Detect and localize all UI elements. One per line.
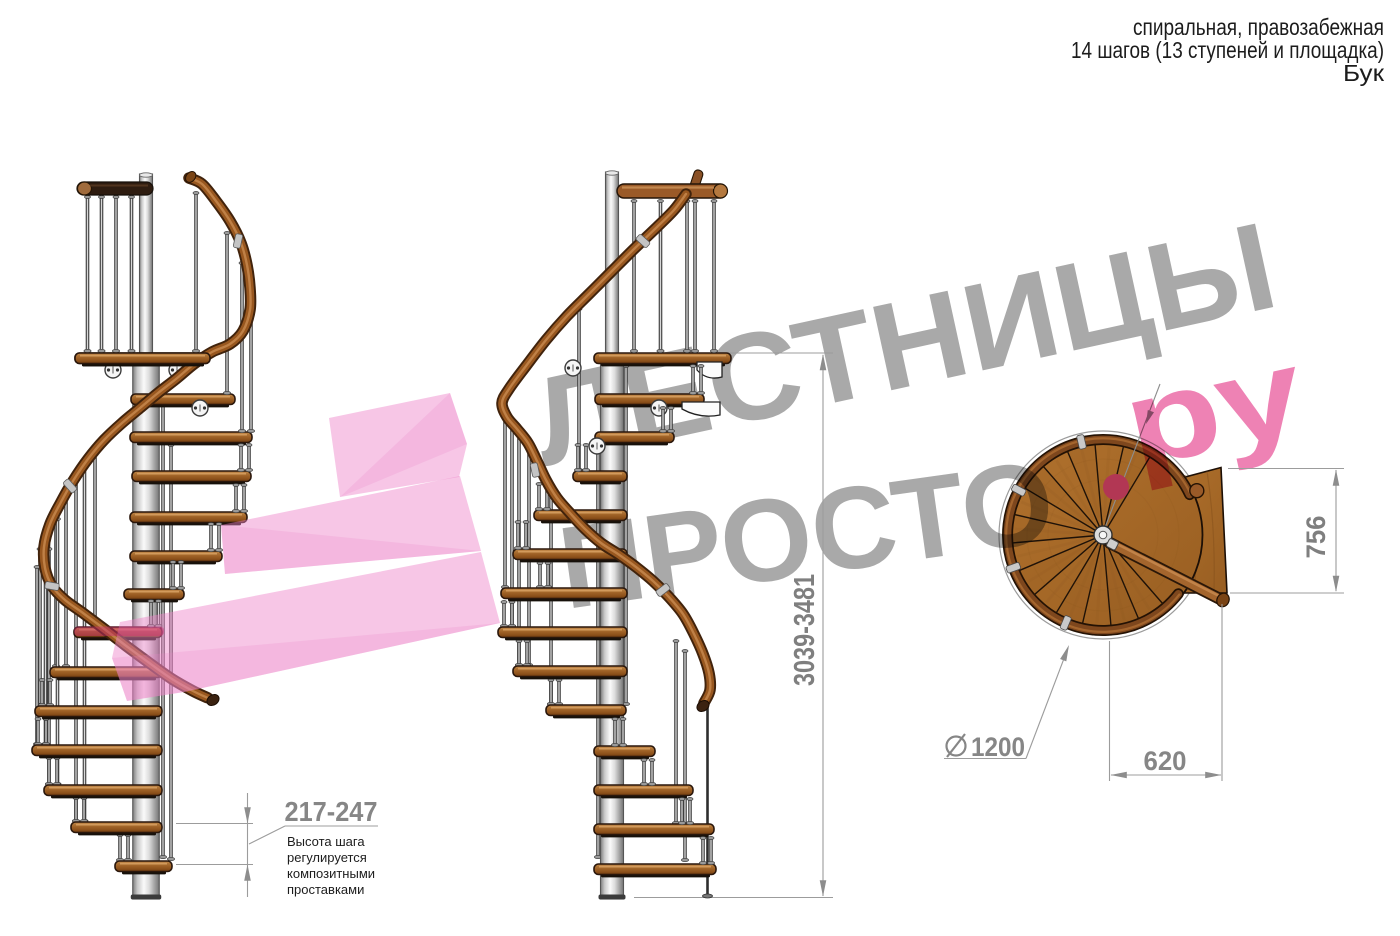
svg-text:регулируется: регулируется xyxy=(287,850,367,865)
svg-text:14 шагов (13 ступеней и площад: 14 шагов (13 ступеней и площадка) xyxy=(1071,37,1384,63)
svg-text:756: 756 xyxy=(1301,516,1331,559)
svg-text:217-247: 217-247 xyxy=(285,796,378,827)
svg-text:1200: 1200 xyxy=(971,732,1025,762)
svg-text:проставками: проставками xyxy=(287,882,364,897)
svg-text:Бук: Бук xyxy=(1343,60,1385,86)
svg-text:композитными: композитными xyxy=(287,866,375,881)
svg-text:620: 620 xyxy=(1144,746,1187,776)
svg-text:3039-3481: 3039-3481 xyxy=(789,574,821,686)
svg-text:Высота шага: Высота шага xyxy=(287,834,365,849)
